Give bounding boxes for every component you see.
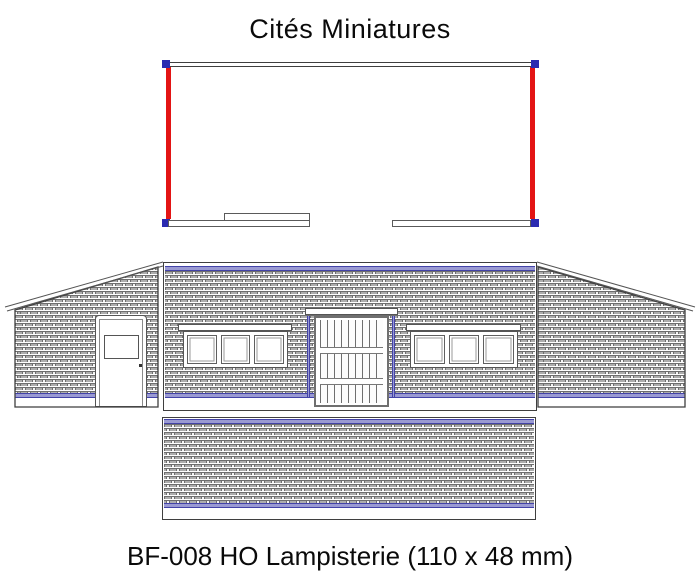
rear-wall-bottom-stripe (164, 503, 534, 508)
right-window-lintel (406, 324, 521, 331)
garage-panel-middle (320, 354, 383, 378)
entrance-door (95, 315, 147, 407)
brand-title: Cités Miniatures (0, 14, 700, 45)
left-window-pane-1 (187, 335, 217, 364)
fold-line-red-left (166, 67, 171, 219)
roof-top-edge (164, 62, 537, 67)
left-window (183, 331, 288, 368)
right-window (410, 331, 518, 368)
right-wall-bricks (538, 267, 685, 393)
roof-bottom-bar-right (392, 220, 531, 227)
door-knob (139, 364, 142, 367)
garage-fold-line-left (307, 316, 310, 397)
garage-fold-line-right (392, 316, 395, 397)
left-window-lintel (178, 324, 292, 331)
right-window-pane-2 (449, 335, 480, 364)
corner-marker-top-right (531, 60, 539, 68)
fold-line-red-right (530, 67, 535, 219)
right-window-pane-3 (483, 335, 514, 364)
corner-marker-bottom-right (531, 219, 539, 227)
right-side-wall-piece (538, 267, 685, 407)
roof-bottom-bar-left (168, 220, 310, 227)
right-window-pane-1 (414, 335, 445, 364)
right-wall-fold-stripe (538, 393, 685, 398)
door-window (104, 335, 139, 359)
door-leaf (99, 319, 143, 406)
corner-marker-top-left (162, 60, 170, 68)
rear-wall-bricks (164, 424, 534, 503)
garage-panel-top (320, 320, 383, 347)
left-window-pane-2 (221, 335, 251, 364)
garage-panel-bottom (320, 385, 383, 403)
garage-door (314, 316, 389, 407)
left-window-pane-3 (254, 335, 284, 364)
product-caption: BF-008 HO Lampisterie (110 x 48 mm) (0, 541, 700, 572)
garage-lintel (305, 308, 398, 315)
model-template-sheet: Cités Miniatures (0, 0, 700, 582)
garage-rail-1 (320, 347, 383, 354)
garage-rail-2 (320, 378, 383, 385)
